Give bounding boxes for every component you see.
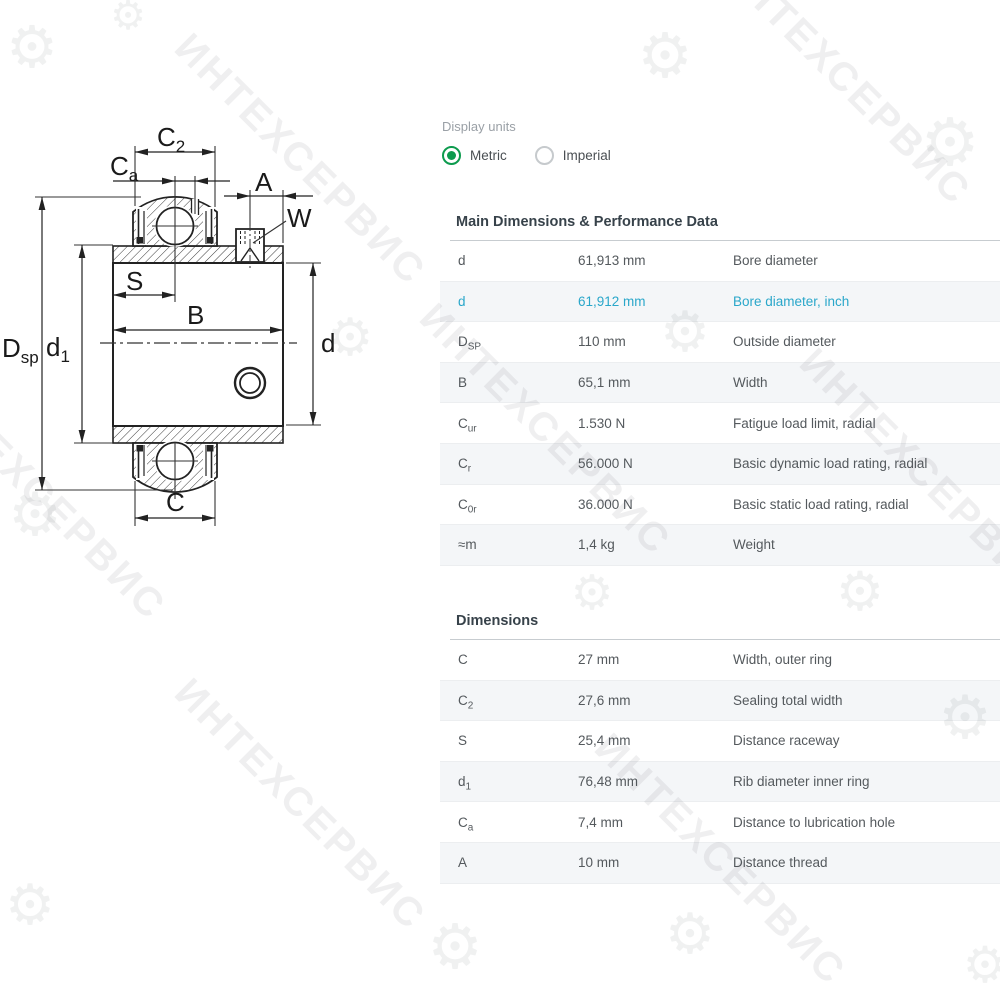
table-row: B65,1 mmWidth (440, 363, 1000, 404)
row-value: 61,913 mm (578, 253, 733, 268)
row-symbol: S (458, 733, 578, 748)
dim-label-d: d (321, 328, 335, 358)
row-description: Basic static load rating, radial (733, 497, 1000, 512)
bearing-technical-drawing: C2CaASBCdd1DspW (0, 0, 440, 560)
dim-label-a: A (255, 167, 273, 197)
row-value: 36.000 N (578, 497, 733, 512)
table-row: d176,48 mmRib diameter inner ring (440, 762, 1000, 803)
seal-right-icon (203, 207, 214, 245)
row-value: 110 mm (578, 334, 733, 349)
row-description: Bore diameter (733, 253, 1000, 268)
table-row: d61,912 mmBore diameter, inch (440, 282, 1000, 323)
seal-left-icon (136, 207, 147, 245)
page: C2CaASBCdd1DspW Display units Metric Imp… (0, 0, 1000, 1000)
row-symbol: Ca (458, 815, 578, 830)
dim-label-b: B (187, 300, 204, 330)
table-row: C0r36.000 NBasic static load rating, rad… (440, 485, 1000, 526)
row-value: 27,6 mm (578, 693, 733, 708)
row-symbol: A (458, 855, 578, 870)
watermark-text: ИНТЕХСЕРВИС (165, 670, 434, 939)
set-screw (236, 223, 264, 269)
radio-metric-label: Metric (470, 148, 507, 163)
dim-label-c: C (166, 487, 185, 517)
row-description: Basic dynamic load rating, radial (733, 456, 1000, 471)
lubrication-hole (235, 368, 265, 398)
display-units-label: Display units (442, 119, 516, 134)
gear-icon: ⚙ (5, 877, 55, 933)
dim-label-w: W (287, 203, 312, 233)
row-value: 27 mm (578, 652, 733, 667)
row-description: Width, outer ring (733, 652, 1000, 667)
dim-label-d1: d1 (46, 332, 70, 366)
row-symbol: C0r (458, 497, 578, 512)
row-symbol: C2 (458, 693, 578, 708)
table-row: C27 mmWidth, outer ring (440, 640, 1000, 681)
radio-imperial-label: Imperial (563, 148, 611, 163)
radio-imperial-control[interactable] (535, 146, 554, 165)
row-value: 1.530 N (578, 416, 733, 431)
row-symbol: d (458, 253, 578, 268)
dimensions-section: Dimensions C27 mmWidth, outer ringC227,6… (440, 605, 1000, 884)
display-units-group: Metric Imperial (442, 146, 611, 165)
row-value: 56.000 N (578, 456, 733, 471)
row-symbol: Cr (458, 456, 578, 471)
row-description: Distance thread (733, 855, 1000, 870)
main-dimensions-table: d61,913 mmBore diameterd61,912 mmBore di… (440, 241, 1000, 566)
row-description: Sealing total width (733, 693, 1000, 708)
table-row: Cur1.530 NFatigue load limit, radial (440, 403, 1000, 444)
table-row: ≈m1,4 kgWeight (440, 525, 1000, 566)
row-value: 25,4 mm (578, 733, 733, 748)
table-row: C227,6 mmSealing total width (440, 681, 1000, 722)
row-description: Distance raceway (733, 733, 1000, 748)
row-symbol: d1 (458, 774, 578, 789)
row-value: 10 mm (578, 855, 733, 870)
table-row: d61,913 mmBore diameter (440, 241, 1000, 282)
row-description: Width (733, 375, 1000, 390)
seal-bottom-left-icon (136, 444, 147, 480)
table-row: A10 mmDistance thread (440, 843, 1000, 884)
row-symbol: d (458, 294, 578, 309)
table-row: Ca7,4 mmDistance to lubrication hole (440, 802, 1000, 843)
radio-metric-control[interactable] (442, 146, 461, 165)
row-symbol: ≈m (458, 537, 578, 552)
row-symbol: Cur (458, 416, 578, 431)
table-row: DSP110 mmOutside diameter (440, 322, 1000, 363)
dimensions-section-title: Dimensions (456, 613, 1000, 630)
main-dimensions-section: Main Dimensions & Performance Data d61,9… (440, 206, 1000, 566)
row-description: Rib diameter inner ring (733, 774, 1000, 789)
row-description: Bore diameter, inch (733, 294, 1000, 309)
row-description: Weight (733, 537, 1000, 552)
row-symbol: C (458, 652, 578, 667)
row-value: 7,4 mm (578, 815, 733, 830)
row-value: 65,1 mm (578, 375, 733, 390)
main-section-title: Main Dimensions & Performance Data (456, 214, 1000, 231)
radio-imperial[interactable]: Imperial (535, 146, 611, 165)
radio-metric[interactable]: Metric (442, 146, 507, 165)
row-description: Distance to lubrication hole (733, 815, 1000, 830)
row-description: Outside diameter (733, 334, 1000, 349)
dim-label-dsp: Dsp (2, 333, 39, 367)
row-symbol: DSP (458, 334, 578, 349)
table-row: S25,4 mmDistance raceway (440, 721, 1000, 762)
row-description: Fatigue load limit, radial (733, 416, 1000, 431)
seal-bottom-right-icon (203, 444, 214, 480)
data-panel: Display units Metric Imperial Main Dimen… (440, 0, 1000, 1000)
row-value: 1,4 kg (578, 537, 733, 552)
dim-label-s: S (126, 266, 143, 296)
dimensions-table: C27 mmWidth, outer ringC227,6 mmSealing … (440, 640, 1000, 884)
row-value: 61,912 mm (578, 294, 733, 309)
table-row: Cr56.000 NBasic dynamic load rating, rad… (440, 444, 1000, 485)
dim-label-c2: C2 (157, 122, 185, 156)
row-value: 76,48 mm (578, 774, 733, 789)
row-symbol: B (458, 375, 578, 390)
